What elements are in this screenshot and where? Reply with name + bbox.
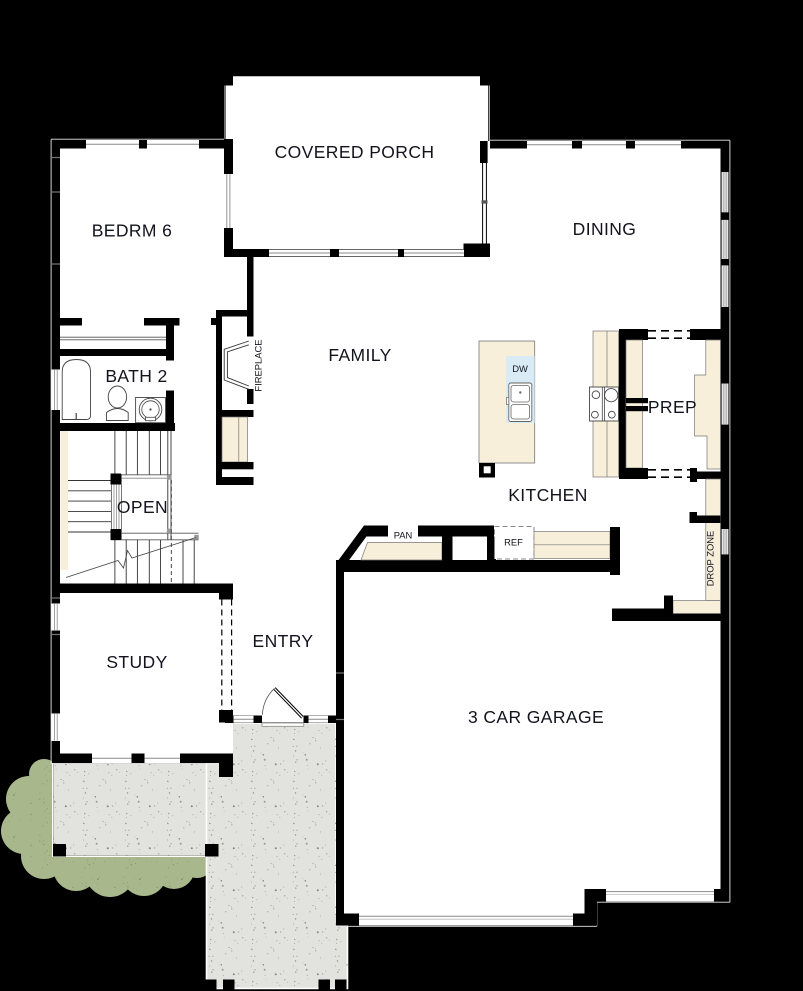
svg-text:PREP: PREP — [648, 397, 697, 417]
svg-text:FIREPLACE: FIREPLACE — [253, 339, 264, 391]
svg-text:DINING: DINING — [573, 219, 637, 239]
svg-text:BEDRM 6: BEDRM 6 — [92, 221, 173, 241]
svg-text:ENTRY: ENTRY — [253, 631, 314, 651]
svg-text:DROP ZONE: DROP ZONE — [705, 531, 716, 587]
svg-text:COVERED PORCH: COVERED PORCH — [275, 142, 435, 162]
svg-text:REF: REF — [504, 537, 523, 548]
svg-text:STUDY: STUDY — [106, 652, 167, 672]
svg-text:FAMILY: FAMILY — [328, 345, 391, 365]
svg-text:OPEN: OPEN — [117, 497, 168, 517]
svg-text:DW: DW — [512, 363, 528, 374]
svg-text:3 CAR GARAGE: 3 CAR GARAGE — [468, 707, 604, 727]
svg-text:BATH 2: BATH 2 — [105, 366, 167, 386]
svg-text:PAN: PAN — [394, 530, 413, 541]
svg-text:KITCHEN: KITCHEN — [508, 485, 588, 505]
